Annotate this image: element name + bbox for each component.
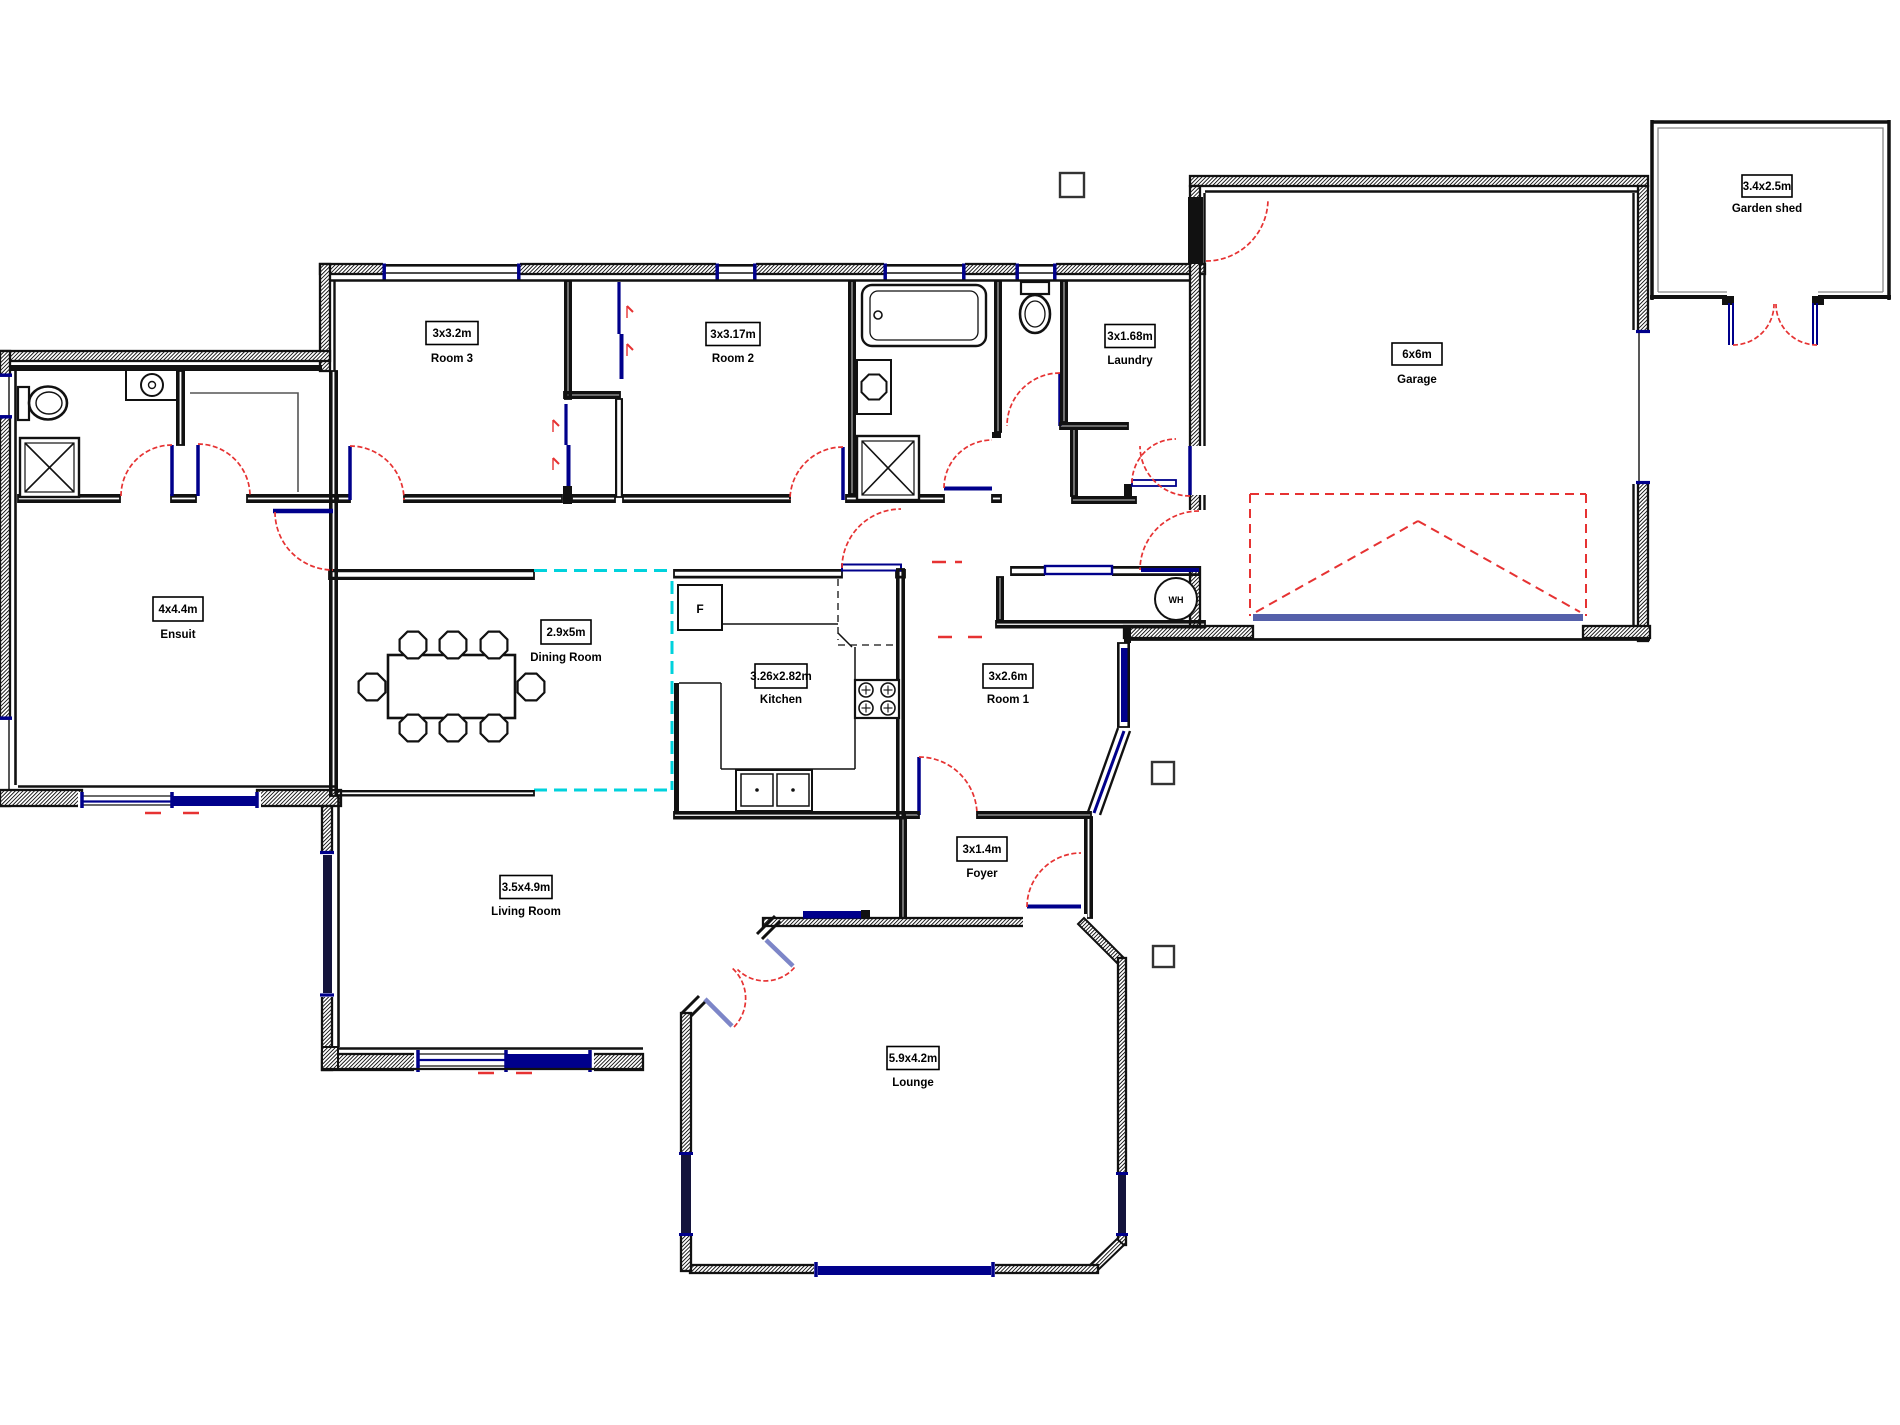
svg-text:Ensuit: Ensuit bbox=[160, 629, 195, 641]
svg-text:3x1.68m: 3x1.68m bbox=[1107, 331, 1152, 343]
svg-text:Garage: Garage bbox=[1397, 374, 1437, 386]
svg-text:Laundry: Laundry bbox=[1107, 355, 1153, 367]
svg-text:Lounge: Lounge bbox=[892, 1077, 934, 1089]
svg-text:Garden shed: Garden shed bbox=[1732, 203, 1802, 215]
svg-text:3.26x2.82m: 3.26x2.82m bbox=[750, 671, 811, 683]
svg-text:Living Room: Living Room bbox=[491, 906, 561, 918]
svg-text:Foyer: Foyer bbox=[966, 868, 998, 880]
svg-text:Room 1: Room 1 bbox=[987, 694, 1030, 706]
svg-text:3.5x4.9m: 3.5x4.9m bbox=[502, 882, 551, 894]
svg-text:Room 3: Room 3 bbox=[431, 353, 473, 365]
svg-text:3.4x2.5m: 3.4x2.5m bbox=[1743, 181, 1792, 193]
svg-text:5.9x4.2m: 5.9x4.2m bbox=[889, 1053, 938, 1065]
svg-text:Dining Room: Dining Room bbox=[530, 652, 602, 664]
svg-text:6x6m: 6x6m bbox=[1402, 349, 1431, 361]
svg-text:WH: WH bbox=[1169, 595, 1184, 605]
svg-text:Room 2: Room 2 bbox=[712, 353, 754, 365]
svg-text:Kitchen: Kitchen bbox=[760, 694, 802, 706]
svg-text:3x1.4m: 3x1.4m bbox=[962, 844, 1001, 856]
svg-text:F: F bbox=[696, 602, 703, 616]
svg-text:2.9x5m: 2.9x5m bbox=[546, 627, 585, 639]
svg-text:3x3.2m: 3x3.2m bbox=[432, 328, 471, 340]
svg-text:3x3.17m: 3x3.17m bbox=[710, 329, 755, 341]
svg-text:4x4.4m: 4x4.4m bbox=[158, 604, 197, 616]
svg-text:3x2.6m: 3x2.6m bbox=[988, 671, 1027, 683]
